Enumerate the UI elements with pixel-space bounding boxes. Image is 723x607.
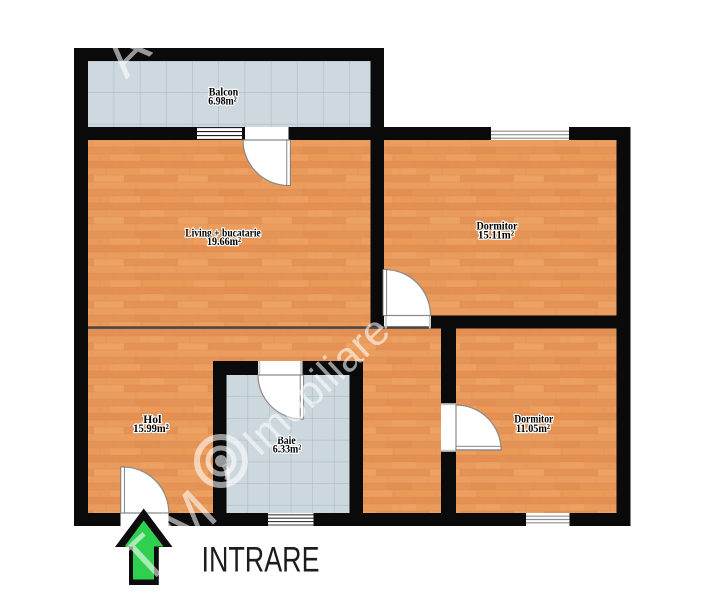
svg-text:19.66m²: 19.66m² — [207, 236, 241, 248]
svg-text:6.98m²: 6.98m² — [208, 96, 237, 108]
svg-text:15.99m²: 15.99m² — [133, 423, 169, 435]
svg-text:INTRARE: INTRARE — [202, 541, 320, 580]
svg-text:15.11m²: 15.11m² — [478, 230, 515, 242]
svg-text:11.05m²: 11.05m² — [516, 423, 550, 435]
